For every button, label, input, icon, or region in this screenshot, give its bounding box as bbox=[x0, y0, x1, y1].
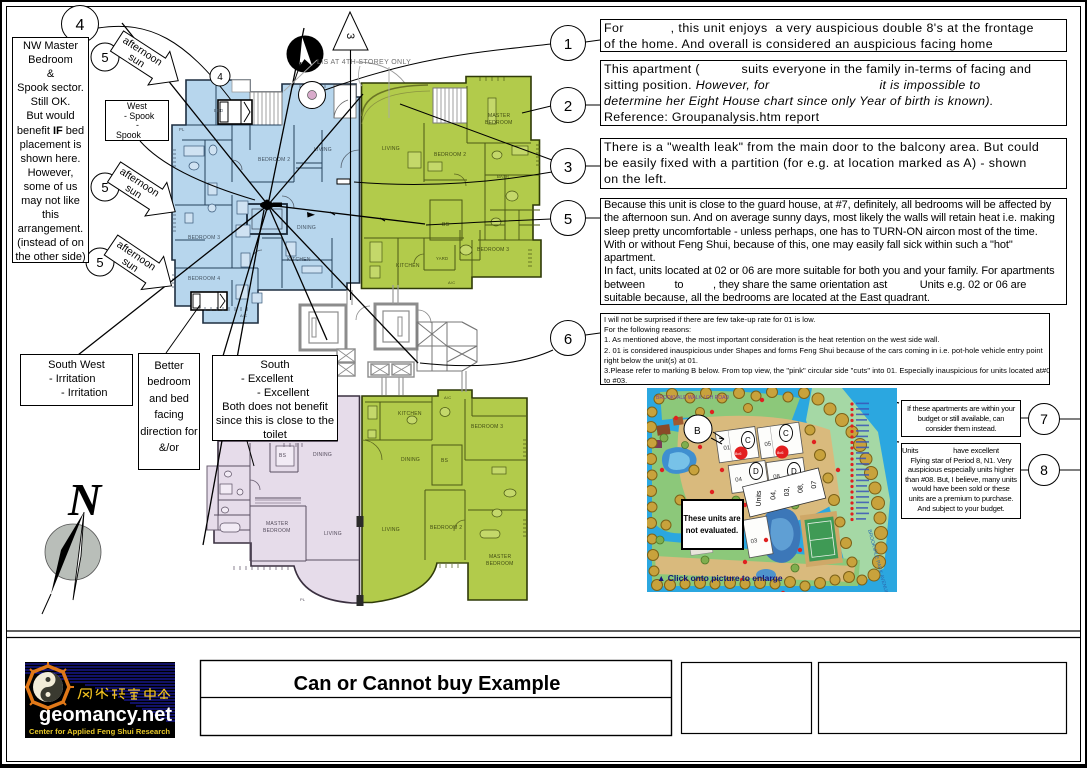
svg-text:PL: PL bbox=[300, 597, 306, 602]
svg-text:BEDROOM 3: BEDROOM 3 bbox=[477, 247, 509, 253]
svg-text:BEDROOM: BEDROOM bbox=[486, 561, 514, 567]
svg-text:BED: BED bbox=[214, 108, 223, 113]
svg-text:LIVING: LIVING bbox=[382, 527, 400, 533]
svg-text:C: C bbox=[745, 436, 751, 445]
svg-text:BEDROOM 3: BEDROOM 3 bbox=[471, 424, 503, 430]
svg-text:BEDROOM: BEDROOM bbox=[485, 120, 513, 126]
svg-text:Units: Units bbox=[756, 490, 763, 507]
svg-text:BEDROOM 2: BEDROOM 2 bbox=[430, 525, 462, 531]
svg-text:PL: PL bbox=[179, 127, 185, 132]
svg-text:C: C bbox=[783, 429, 789, 438]
svg-text:8c6: 8c6 bbox=[735, 451, 742, 456]
svg-text:N: N bbox=[67, 474, 103, 525]
svg-text:8: 8 bbox=[1040, 462, 1048, 478]
svg-text:4: 4 bbox=[76, 17, 85, 34]
svg-text:BEDROOM 2: BEDROOM 2 bbox=[434, 152, 466, 158]
svg-text:not evaluated.: not evaluated. bbox=[686, 526, 738, 535]
svg-text:MASTER: MASTER bbox=[488, 113, 510, 119]
svg-text:YARD: YARD bbox=[436, 256, 448, 261]
svg-text:BEDROOM 4: BEDROOM 4 bbox=[188, 276, 220, 282]
svg-text:DINING: DINING bbox=[401, 457, 420, 463]
svg-text:DINING: DINING bbox=[313, 452, 332, 458]
svg-text:04,: 04, bbox=[770, 490, 777, 500]
svg-text:MASTER: MASTER bbox=[266, 521, 288, 527]
svg-text:LIVING: LIVING bbox=[382, 146, 400, 152]
svg-text:A/C: A/C bbox=[448, 280, 455, 285]
svg-text:BROOKVALE WALK / CH ROAD: BROOKVALE WALK / CH ROAD bbox=[656, 395, 729, 401]
svg-text:BS: BS bbox=[441, 458, 449, 464]
svg-text:3: 3 bbox=[564, 159, 572, 176]
svg-text:geomancy.net: geomancy.net bbox=[39, 704, 172, 726]
svg-text:03,: 03, bbox=[784, 487, 791, 497]
svg-text:BEDROOM 3: BEDROOM 3 bbox=[188, 235, 220, 241]
svg-text:KITCHEN: KITCHEN bbox=[396, 263, 420, 269]
svg-text:5: 5 bbox=[564, 211, 572, 228]
svg-text:3: 3 bbox=[344, 33, 356, 39]
svg-text:D: D bbox=[753, 467, 759, 476]
svg-text:4: 4 bbox=[217, 72, 223, 83]
svg-text:5: 5 bbox=[101, 50, 108, 65]
svg-text:8c6: 8c6 bbox=[777, 450, 784, 455]
svg-text:1: 1 bbox=[564, 36, 572, 53]
svg-text:Center for Applied Feng Shui R: Center for Applied Feng Shui Research bbox=[29, 727, 170, 736]
svg-text:B: B bbox=[694, 426, 701, 437]
svg-text:KITCHEN: KITCHEN bbox=[398, 411, 422, 417]
svg-text:These units are: These units are bbox=[683, 514, 741, 523]
svg-text:BEDROOM 2: BEDROOM 2 bbox=[258, 157, 290, 163]
svg-text:LIS AT 4TH STOREY ONLY: LIS AT 4TH STOREY ONLY bbox=[317, 59, 411, 66]
svg-text:BS: BS bbox=[279, 453, 287, 459]
svg-text:▲ Click onto picture to enlarg: ▲ Click onto picture to enlarge bbox=[657, 573, 783, 583]
svg-text:08,: 08, bbox=[797, 483, 804, 493]
svg-text:07: 07 bbox=[811, 481, 818, 489]
svg-text:A/C: A/C bbox=[240, 313, 247, 318]
svg-text:LIVING: LIVING bbox=[324, 531, 342, 537]
svg-text:A/C: A/C bbox=[444, 395, 451, 400]
svg-text:DINING: DINING bbox=[297, 225, 316, 231]
svg-text:BEDROOM: BEDROOM bbox=[263, 528, 291, 534]
svg-text:5: 5 bbox=[96, 255, 103, 270]
svg-text:7: 7 bbox=[1040, 411, 1048, 427]
svg-text:2: 2 bbox=[564, 98, 572, 115]
svg-text:Can or Cannot buy Example: Can or Cannot buy Example bbox=[294, 673, 561, 695]
svg-text:MASTER: MASTER bbox=[489, 554, 511, 560]
svg-text:BS: BS bbox=[442, 222, 450, 228]
svg-text:6: 6 bbox=[564, 331, 572, 348]
